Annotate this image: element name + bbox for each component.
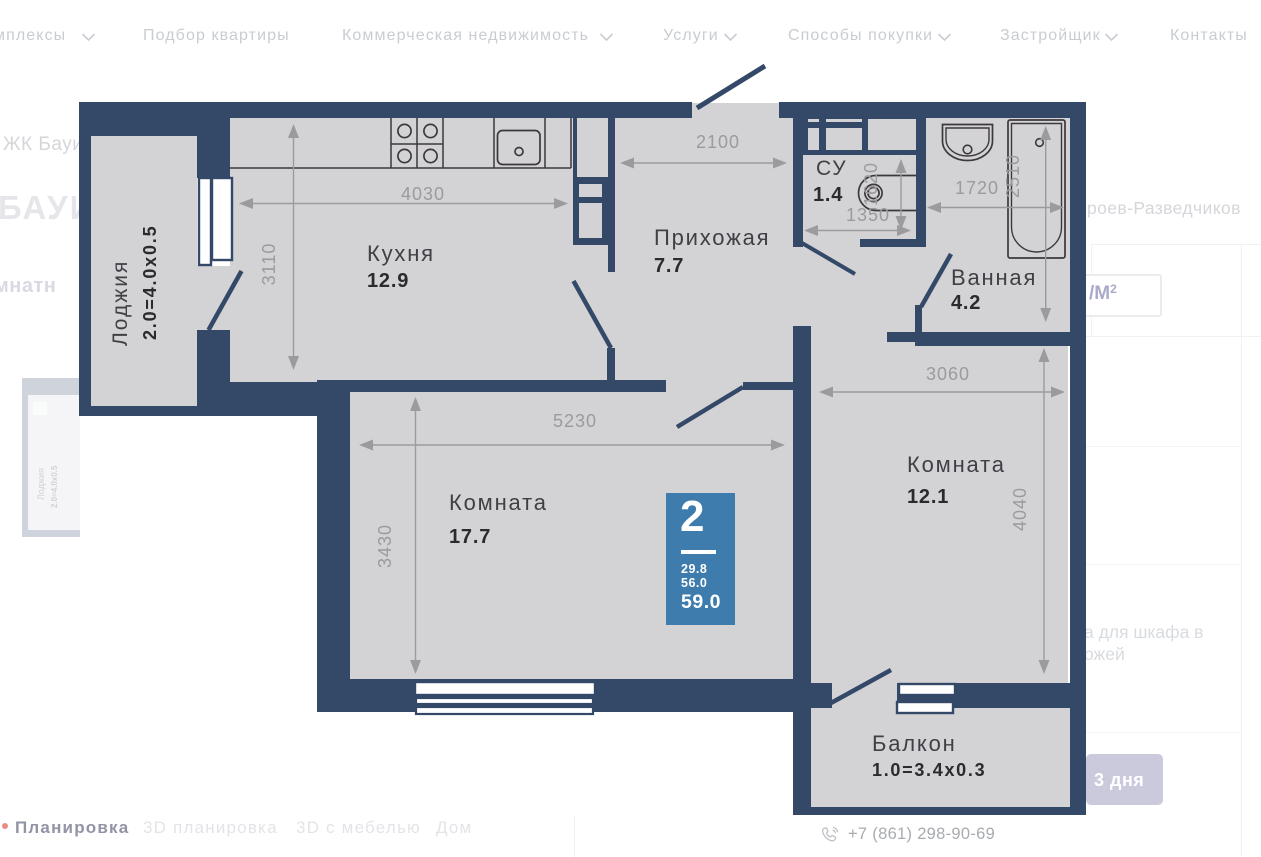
svg-text:Лоджия: Лоджия [109, 260, 132, 346]
svg-text:1.0=3.4x0.3: 1.0=3.4x0.3 [872, 760, 986, 780]
svg-text:Прихожая: Прихожая [654, 225, 770, 250]
svg-text:1720: 1720 [955, 178, 999, 198]
svg-text:3430: 3430 [375, 524, 395, 568]
svg-text:1350: 1350 [846, 205, 890, 225]
svg-text:2100: 2100 [696, 132, 740, 152]
svg-text:4030: 4030 [401, 184, 445, 204]
svg-text:2: 2 [680, 492, 704, 541]
svg-text:12.9: 12.9 [367, 270, 409, 292]
svg-text:7.7: 7.7 [654, 255, 684, 277]
svg-text:Ванная: Ванная [951, 265, 1037, 290]
svg-text:17.7: 17.7 [449, 526, 491, 548]
svg-text:4.2: 4.2 [951, 292, 981, 314]
svg-text:4040: 4040 [1010, 487, 1030, 531]
svg-text:1620: 1620 [861, 162, 881, 206]
svg-text:56.0: 56.0 [681, 576, 707, 590]
svg-text:Балкон: Балкон [872, 731, 957, 756]
svg-text:СУ: СУ [816, 157, 847, 180]
svg-text:12.1: 12.1 [907, 486, 949, 508]
svg-text:5230: 5230 [553, 411, 597, 431]
svg-text:59.0: 59.0 [681, 591, 721, 613]
svg-text:Комната: Комната [449, 490, 548, 515]
svg-text:Кухня: Кухня [367, 241, 435, 266]
svg-text:29.8: 29.8 [681, 562, 707, 576]
svg-text:2.0=4.0x0.5: 2.0=4.0x0.5 [140, 225, 160, 340]
svg-text:2510: 2510 [1003, 154, 1023, 198]
svg-text:3110: 3110 [259, 243, 279, 286]
svg-text:3060: 3060 [926, 364, 970, 384]
svg-text:Комната: Комната [907, 452, 1006, 477]
svg-text:1.4: 1.4 [813, 184, 843, 206]
